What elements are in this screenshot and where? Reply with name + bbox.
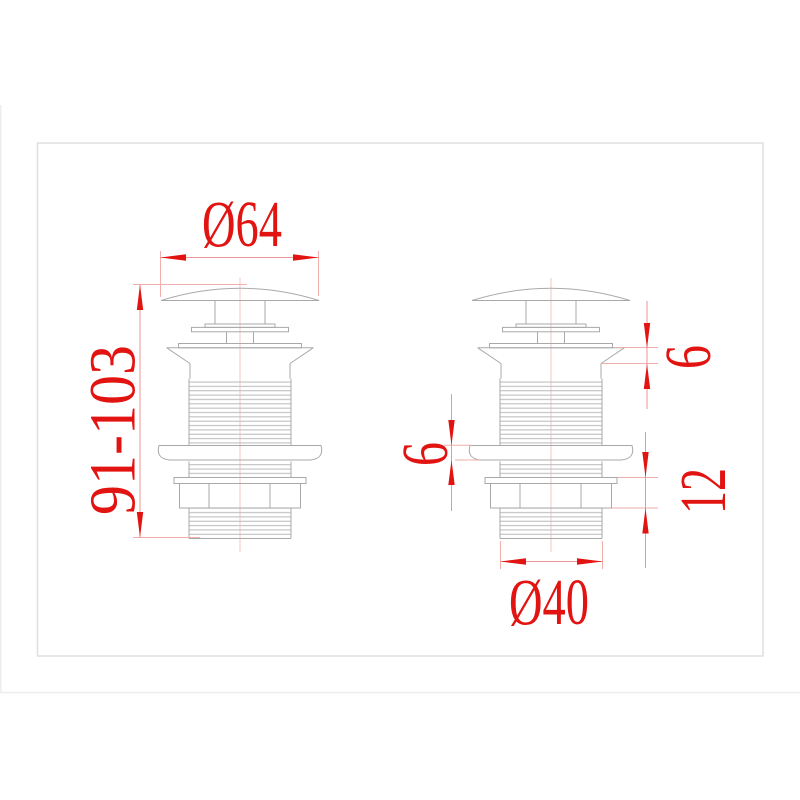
arrowhead-left	[161, 254, 187, 260]
extension-line	[602, 348, 658, 364]
arrowhead-top	[644, 323, 650, 348]
dimension-label: 12	[667, 468, 740, 514]
drain-fitting-right-view	[469, 278, 632, 552]
dim-washer-height: 6	[389, 394, 480, 511]
arrowhead-right	[577, 558, 603, 564]
arrowhead-top	[448, 420, 454, 445]
technical-drawing-canvas: Ø64 91-103 6 6 12 Ø40	[0, 0, 800, 800]
dimension-label: Ø64	[202, 188, 282, 261]
arrowhead-bottom	[644, 364, 650, 389]
arrowhead-top	[137, 285, 143, 311]
dim-thread-diameter: Ø40	[501, 541, 603, 639]
arrowhead-top	[642, 452, 648, 478]
drain-fitting-left-view	[158, 278, 321, 552]
arrowhead-left	[501, 558, 527, 564]
dim-flange-height: 6	[602, 301, 725, 409]
dimension-label: Ø40	[509, 566, 589, 639]
dimension-label: 6	[389, 442, 462, 466]
arrowhead-right	[293, 254, 319, 260]
extension-line	[612, 478, 658, 509]
dim-locknut-height: 12	[612, 432, 740, 568]
arrowhead-bottom	[642, 508, 648, 534]
dimension-label: 6	[652, 345, 725, 369]
dimension-label: 91-103	[77, 345, 150, 515]
